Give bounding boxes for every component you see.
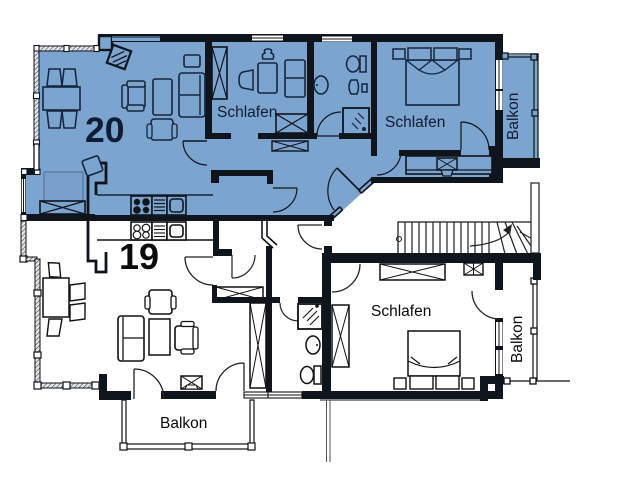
svg-text:Balkon: Balkon	[160, 415, 207, 432]
svg-text:Schlafen: Schlafen	[371, 303, 431, 320]
svg-text:Schlafen: Schlafen	[217, 104, 277, 121]
svg-text:Schlafen: Schlafen	[385, 114, 445, 131]
svg-text:Balkon: Balkon	[509, 316, 526, 363]
svg-text:19: 19	[119, 236, 159, 277]
svg-text:20: 20	[85, 110, 125, 150]
svg-text:Balkon: Balkon	[505, 93, 522, 140]
